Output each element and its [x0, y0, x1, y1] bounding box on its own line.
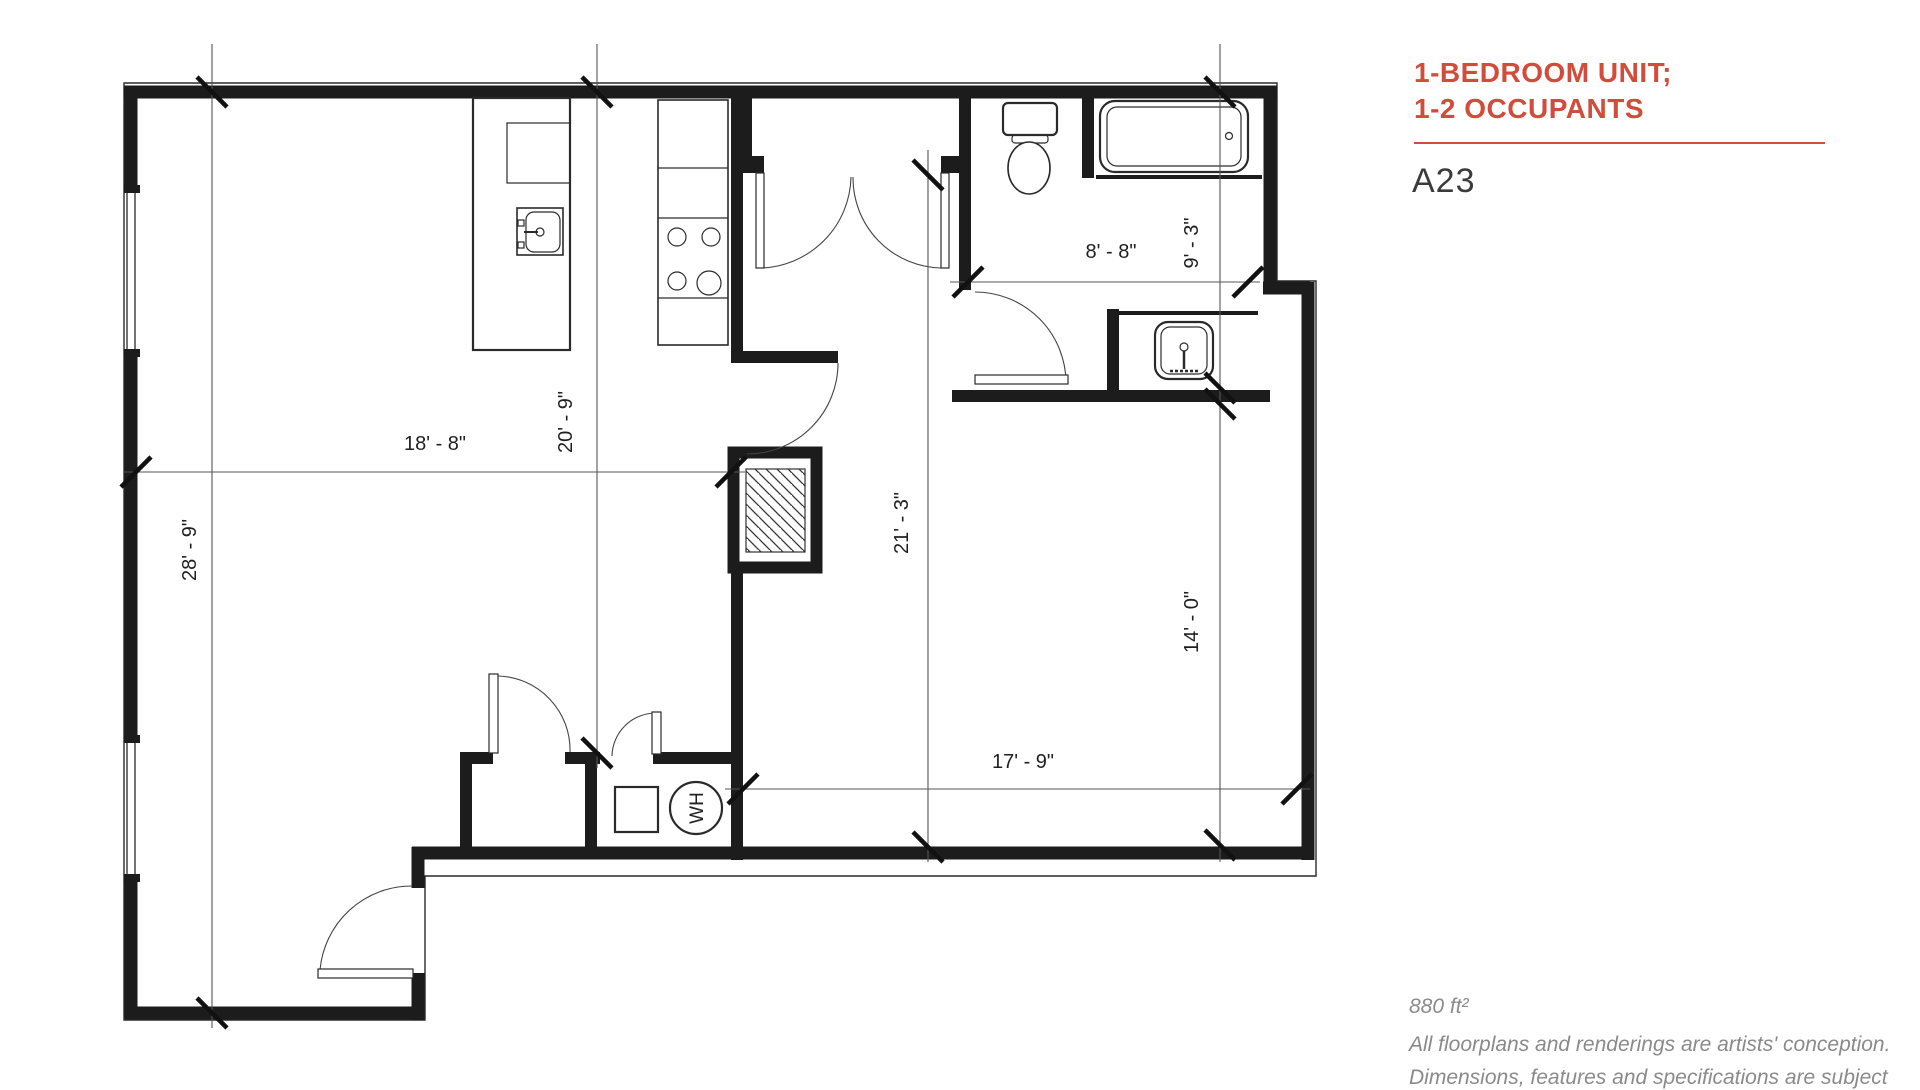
water-heater-label: WH	[687, 792, 708, 824]
closet-double-doors	[756, 173, 949, 268]
dimension-label-bedroom-width: 17' - 9"	[992, 751, 1054, 773]
dimension-label-kitchen-depth: 20' - 9"	[555, 391, 577, 453]
hall-closet-door	[489, 674, 570, 753]
dimension-label-bedroom-full-depth: 21' - 3"	[891, 492, 913, 554]
dimension-label-bath-depth: 9' - 3"	[1181, 218, 1203, 269]
page-root: { "panel": { "title_line1": "1-BEDROOM U…	[0, 0, 1920, 1080]
dimension-label-living-width: 18' - 8"	[404, 433, 466, 455]
floorplan-drawing: WH 18' - 8" 20' - 9" 28' - 9" 21' - 3" 8…	[0, 0, 1920, 1080]
unit-title-line2: 1-2 OCCUPANTS	[1414, 91, 1672, 127]
bedroom-door	[747, 363, 838, 454]
bathroom-door	[975, 292, 1068, 384]
bathroom-sink	[1155, 322, 1213, 379]
unit-code: A23	[1412, 162, 1476, 201]
water-heater-closet-door	[612, 712, 661, 756]
title-underline	[1414, 142, 1825, 144]
area-label: 880 ft²	[1409, 995, 1469, 1019]
kitchen-counter	[658, 100, 728, 345]
interior-walls	[460, 98, 1270, 860]
shaft-hatch	[734, 453, 817, 568]
entry-door	[318, 886, 413, 978]
toilet	[1003, 103, 1057, 194]
unit-title-line1: 1-BEDROOM UNIT;	[1414, 55, 1672, 91]
dimension-label-bedroom-depth: 14' - 0"	[1181, 591, 1203, 653]
dimension-label-bath-width: 8' - 8"	[1086, 241, 1137, 263]
bathtub	[1100, 101, 1248, 172]
dimension-label-living-depth: 28' - 9"	[179, 519, 201, 581]
water-heater: WH	[670, 782, 722, 834]
kitchen-sink	[517, 208, 563, 255]
disclaimer-line-2: Dimensions, features and specifications …	[1409, 1066, 1888, 1090]
disclaimer-line-1: All floorplans and renderings are artist…	[1409, 1033, 1890, 1057]
washer-box	[615, 787, 658, 832]
unit-title: 1-BEDROOM UNIT; 1-2 OCCUPANTS	[1414, 55, 1672, 127]
